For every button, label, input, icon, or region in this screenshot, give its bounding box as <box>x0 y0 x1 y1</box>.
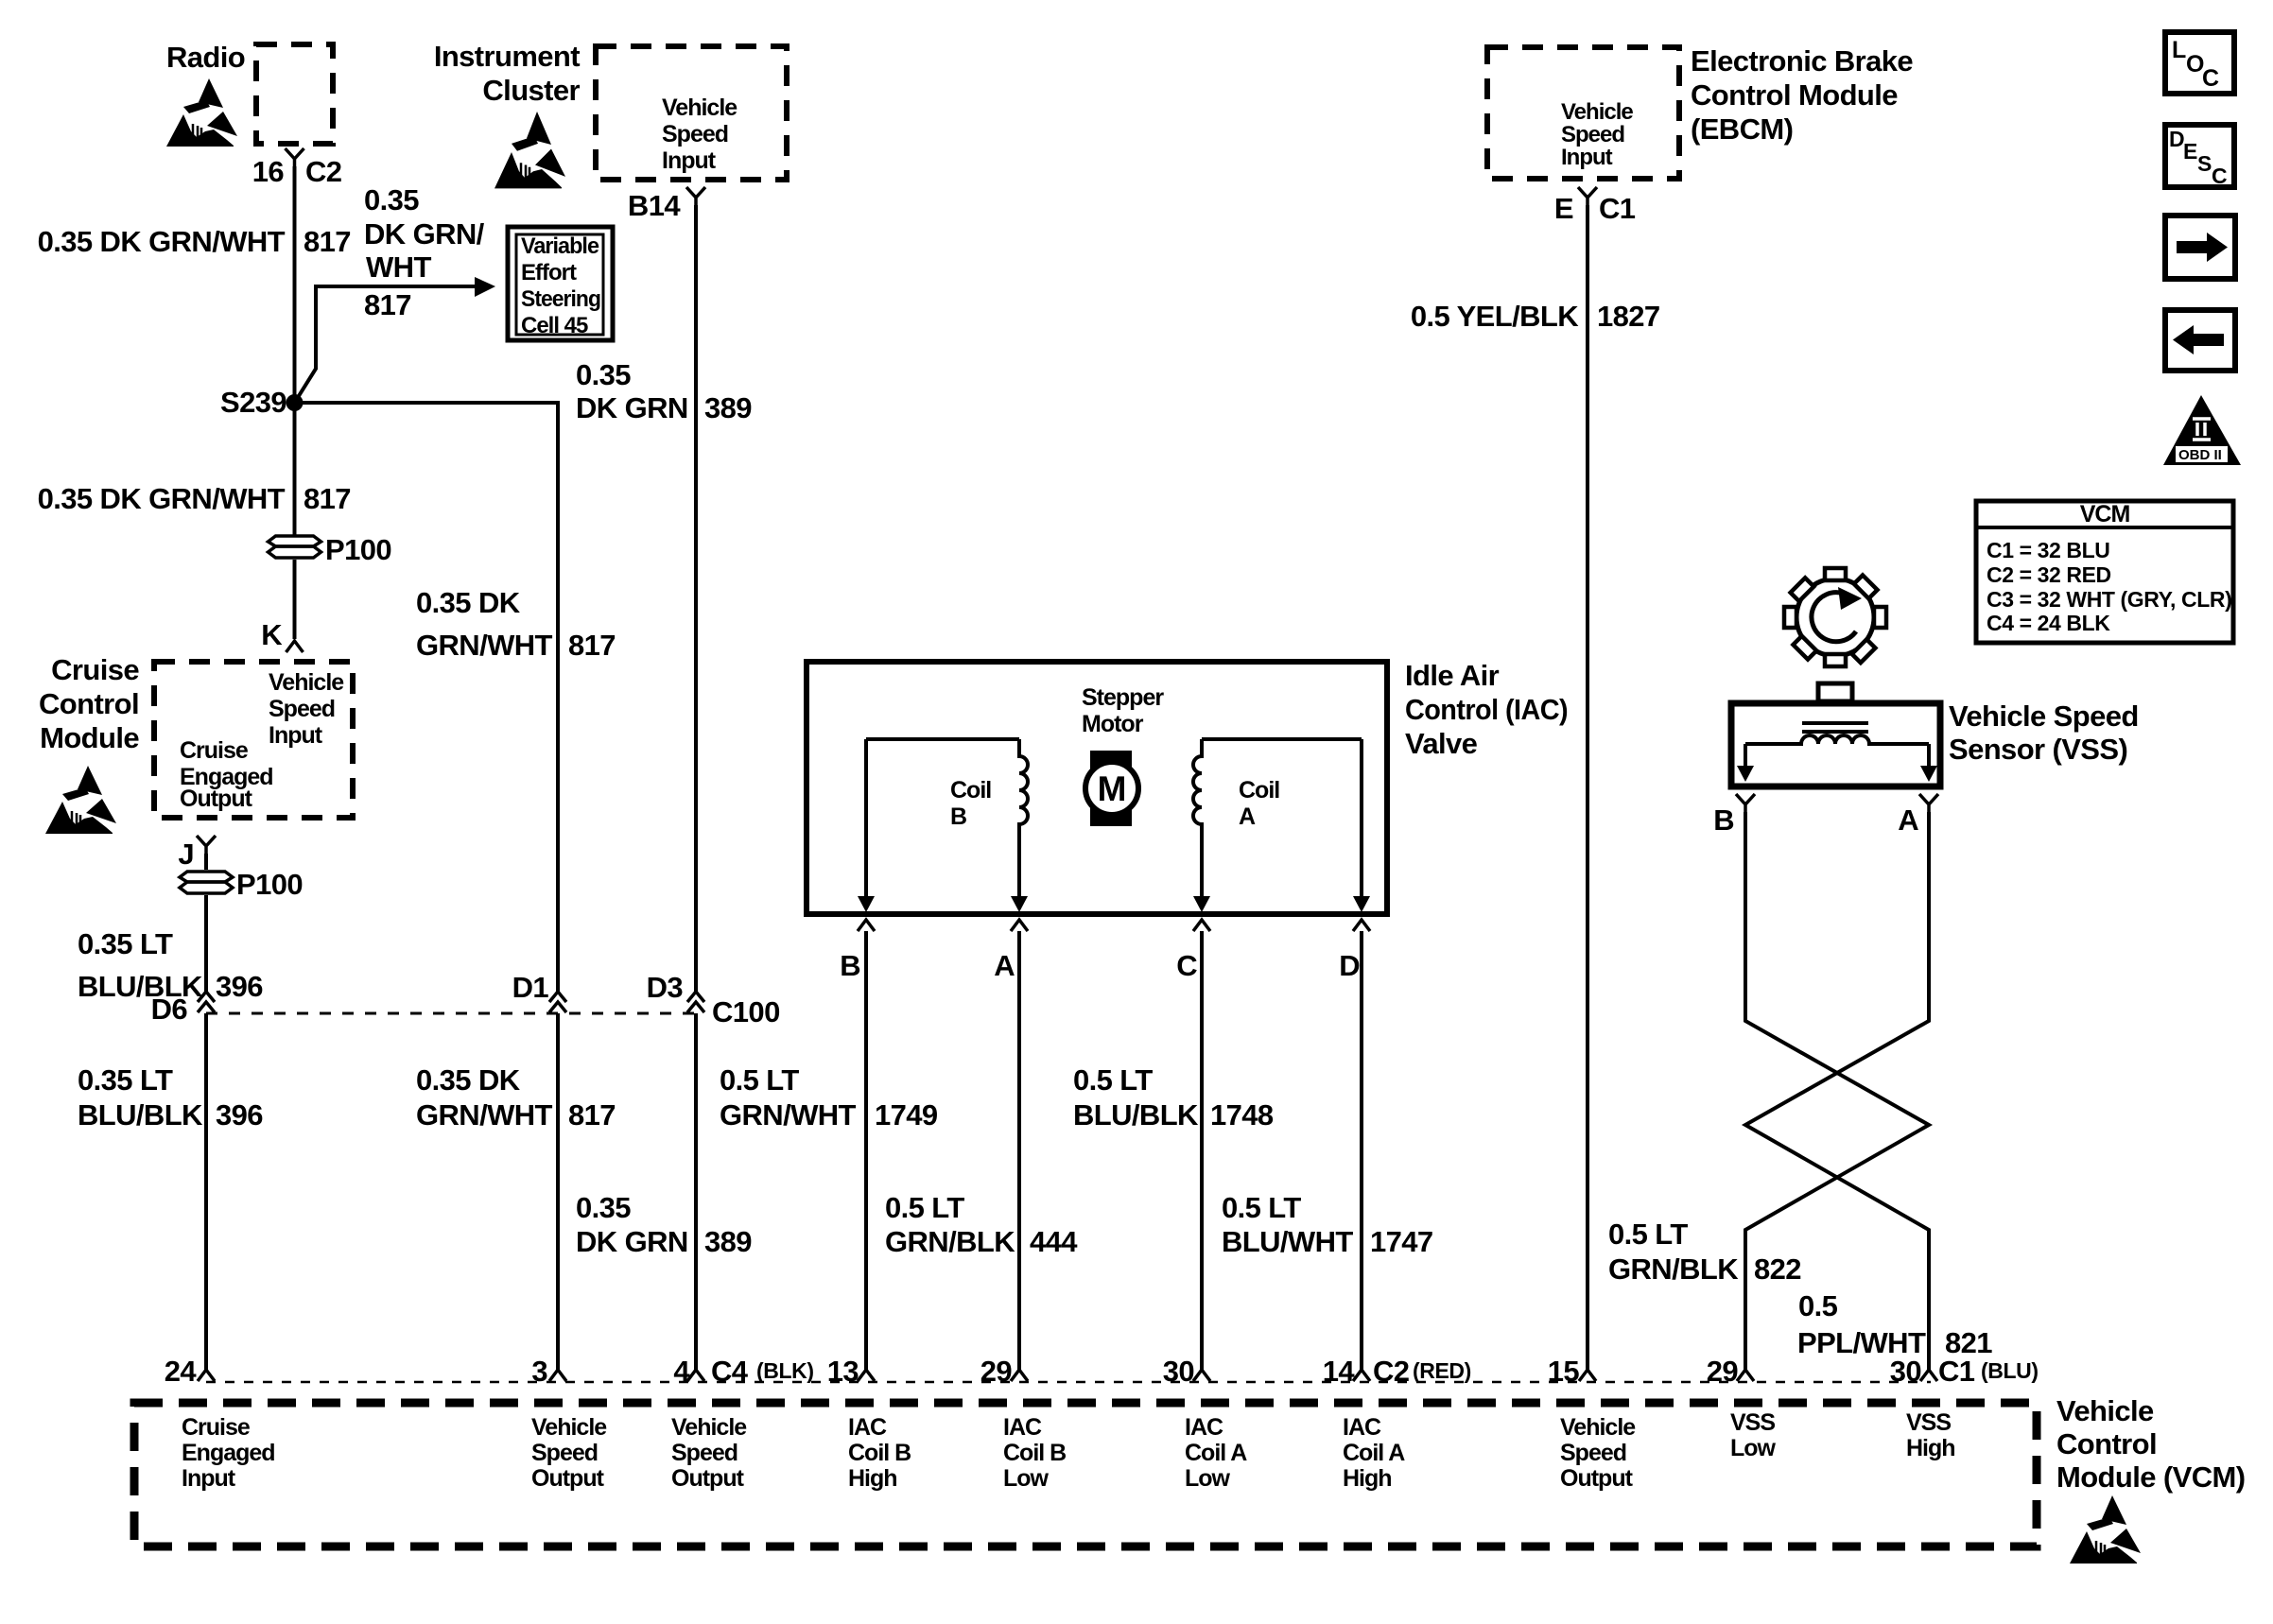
svg-text:Coil A: Coil A <box>1343 1440 1405 1466</box>
svg-text:0.35 DK: 0.35 DK <box>416 586 521 619</box>
svg-text:Radio: Radio <box>166 41 245 74</box>
svg-text:B: B <box>1713 803 1734 837</box>
svg-text:817: 817 <box>364 288 411 321</box>
svg-text:Stepper: Stepper <box>1082 684 1164 711</box>
svg-text:Low: Low <box>1730 1435 1777 1461</box>
svg-text:Cruise: Cruise <box>51 653 139 686</box>
svg-text:Low: Low <box>1185 1465 1231 1492</box>
svg-text:Module (VCM): Module (VCM) <box>2056 1460 2245 1494</box>
svg-text:0.5 LT: 0.5 LT <box>1222 1191 1301 1224</box>
svg-text:0.35: 0.35 <box>576 358 631 391</box>
svg-text:Vehicle: Vehicle <box>269 669 344 696</box>
svg-text:Module: Module <box>40 721 139 754</box>
svg-text:Control Module: Control Module <box>1691 78 1898 112</box>
svg-text:Valve: Valve <box>1405 727 1478 760</box>
svg-text:Vehicle Speed: Vehicle Speed <box>1949 700 2139 733</box>
svg-text:29: 29 <box>980 1355 1013 1388</box>
svg-text:15: 15 <box>1548 1355 1580 1388</box>
svg-text:High: High <box>848 1465 897 1492</box>
svg-text:GRN/WHT: GRN/WHT <box>416 1098 553 1132</box>
svg-text:817: 817 <box>568 1098 616 1132</box>
svg-text:Variable: Variable <box>521 233 599 259</box>
svg-text:Speed: Speed <box>671 1440 737 1466</box>
svg-text:Coil B: Coil B <box>848 1440 911 1466</box>
svg-text:30: 30 <box>1163 1355 1194 1388</box>
svg-text:3: 3 <box>531 1355 547 1388</box>
svg-text:13: 13 <box>827 1355 859 1388</box>
svg-text:D6: D6 <box>151 993 188 1026</box>
svg-text:P100: P100 <box>236 868 303 901</box>
svg-text:Cruise: Cruise <box>180 737 249 764</box>
svg-text:Control: Control <box>39 687 139 720</box>
svg-text:0.35 DK GRN/WHT: 0.35 DK GRN/WHT <box>38 482 286 515</box>
svg-text:(RED): (RED) <box>1413 1358 1471 1383</box>
svg-text:822: 822 <box>1754 1253 1801 1286</box>
svg-text:Control (IAC): Control (IAC) <box>1405 693 1568 726</box>
svg-text:Vehicle: Vehicle <box>1561 99 1633 125</box>
svg-text:C1: C1 <box>1599 192 1636 225</box>
svg-text:S239: S239 <box>220 386 286 419</box>
svg-text:C4: C4 <box>711 1355 749 1388</box>
svg-text:0.5: 0.5 <box>1798 1289 1838 1322</box>
svg-text:0.5 LT: 0.5 LT <box>885 1191 964 1224</box>
svg-text:Vehicle: Vehicle <box>2056 1394 2154 1427</box>
svg-text:1827: 1827 <box>1597 300 1660 333</box>
svg-text:Cruise: Cruise <box>182 1414 251 1441</box>
svg-text:Output: Output <box>1560 1465 1634 1492</box>
svg-text:S: S <box>2197 151 2212 176</box>
svg-text:389: 389 <box>704 391 752 424</box>
svg-text:Steering: Steering <box>521 286 600 312</box>
svg-text:C100: C100 <box>712 995 780 1028</box>
svg-text:C3 = 32 WHT (GRY, CLR): C3 = 32 WHT (GRY, CLR) <box>1987 587 2231 612</box>
svg-text:D3: D3 <box>647 971 684 1004</box>
svg-text:IAC: IAC <box>1343 1414 1381 1441</box>
svg-text:WHT: WHT <box>366 251 431 284</box>
svg-text:IAC: IAC <box>848 1414 887 1441</box>
svg-text:IAC: IAC <box>1185 1414 1223 1441</box>
svg-text:VSS: VSS <box>1730 1409 1775 1436</box>
svg-text:(EBCM): (EBCM) <box>1691 112 1793 146</box>
svg-text:Input: Input <box>1561 145 1613 170</box>
svg-text:C2 = 32 RED: C2 = 32 RED <box>1987 562 2111 587</box>
svg-text:P100: P100 <box>325 533 391 566</box>
svg-text:VSS: VSS <box>1906 1409 1951 1436</box>
svg-text:M: M <box>1098 769 1127 808</box>
svg-text:GRN/BLK: GRN/BLK <box>1608 1253 1739 1286</box>
svg-text:C1: C1 <box>1938 1355 1975 1388</box>
svg-text:VCM: VCM <box>2080 501 2130 527</box>
svg-text:0.5 YEL/BLK: 0.5 YEL/BLK <box>1411 300 1579 333</box>
svg-text:C4 = 24 BLK: C4 = 24 BLK <box>1987 611 2110 635</box>
svg-text:High: High <box>1906 1435 1955 1461</box>
svg-text:Instrument: Instrument <box>434 40 580 73</box>
svg-text:Low: Low <box>1003 1465 1050 1492</box>
svg-text:0.35: 0.35 <box>576 1191 631 1224</box>
svg-text:High: High <box>1343 1465 1392 1492</box>
svg-text:IAC: IAC <box>1003 1414 1042 1441</box>
svg-text:16: 16 <box>252 155 285 188</box>
svg-text:0.5 LT: 0.5 LT <box>1073 1063 1153 1097</box>
svg-text:389: 389 <box>704 1225 752 1258</box>
svg-text:A: A <box>994 949 1015 982</box>
svg-text:817: 817 <box>304 482 351 515</box>
svg-text:Coil B: Coil B <box>1003 1440 1066 1466</box>
svg-text:24: 24 <box>165 1355 198 1388</box>
svg-text:Vehicle: Vehicle <box>671 1414 747 1441</box>
svg-text:DK GRN: DK GRN <box>576 1225 688 1258</box>
svg-text:Speed: Speed <box>662 121 728 147</box>
svg-text:E: E <box>1554 192 1573 225</box>
svg-text:4: 4 <box>673 1355 690 1388</box>
svg-text:C1 = 32 BLU: C1 = 32 BLU <box>1987 538 2109 562</box>
svg-text:C: C <box>1176 949 1197 982</box>
svg-text:0.35 DK: 0.35 DK <box>416 1063 521 1097</box>
svg-text:Cluster: Cluster <box>482 74 580 107</box>
svg-text:Speed: Speed <box>269 696 335 722</box>
svg-text:K: K <box>261 618 283 651</box>
svg-text:444: 444 <box>1030 1225 1078 1258</box>
svg-text:0.35 LT: 0.35 LT <box>78 927 173 960</box>
svg-text:BLU/BLK: BLU/BLK <box>78 1098 203 1132</box>
svg-text:J: J <box>178 838 194 871</box>
svg-text:D1: D1 <box>512 971 549 1004</box>
svg-text:D: D <box>2169 127 2184 151</box>
svg-text:396: 396 <box>216 1098 263 1132</box>
svg-text:30: 30 <box>1890 1355 1921 1388</box>
svg-text:0.35 LT: 0.35 LT <box>78 1063 173 1097</box>
svg-text:GRN/WHT: GRN/WHT <box>416 629 553 662</box>
svg-text:Cell 45: Cell 45 <box>521 313 588 338</box>
svg-text:Vehicle: Vehicle <box>1560 1414 1636 1441</box>
svg-text:Motor: Motor <box>1082 711 1144 737</box>
svg-text:DK GRN: DK GRN <box>576 391 688 424</box>
svg-text:C: C <box>2212 164 2227 188</box>
svg-text:Effort: Effort <box>521 260 577 285</box>
svg-text:Engaged: Engaged <box>182 1440 275 1466</box>
svg-text:1749: 1749 <box>875 1098 938 1132</box>
svg-text:Output: Output <box>531 1465 605 1492</box>
svg-text:B14: B14 <box>628 189 681 222</box>
svg-text:14: 14 <box>1323 1355 1356 1388</box>
svg-text:C2: C2 <box>1373 1355 1409 1388</box>
svg-text:Vehicle: Vehicle <box>662 95 737 121</box>
svg-text:Idle Air: Idle Air <box>1405 659 1500 692</box>
svg-text:BLU/WHT: BLU/WHT <box>1222 1225 1353 1258</box>
svg-text:C2: C2 <box>305 155 341 188</box>
svg-text:Electronic Brake: Electronic Brake <box>1691 44 1913 78</box>
svg-text:DK GRN/: DK GRN/ <box>364 217 485 251</box>
svg-text:Speed: Speed <box>1560 1440 1626 1466</box>
svg-text:1747: 1747 <box>1370 1225 1433 1258</box>
svg-text:817: 817 <box>304 225 351 258</box>
svg-text:BLU/BLK: BLU/BLK <box>1073 1098 1199 1132</box>
svg-text:E: E <box>2183 139 2197 164</box>
svg-text:(BLK): (BLK) <box>756 1358 814 1383</box>
svg-text:(BLU): (BLU) <box>1981 1358 2039 1383</box>
svg-text:396: 396 <box>216 970 263 1003</box>
svg-text:1748: 1748 <box>1210 1098 1274 1132</box>
svg-text:L: L <box>2172 37 2186 63</box>
svg-text:GRN/WHT: GRN/WHT <box>720 1098 857 1132</box>
svg-text:Output: Output <box>180 786 253 812</box>
svg-text:A: A <box>1239 803 1256 830</box>
svg-text:Output: Output <box>671 1465 745 1492</box>
svg-text:C: C <box>2202 65 2219 92</box>
svg-text:0.35: 0.35 <box>364 183 419 216</box>
svg-text:817: 817 <box>568 629 616 662</box>
svg-text:0.5 LT: 0.5 LT <box>1608 1218 1688 1251</box>
svg-text:0.35 DK GRN/WHT: 0.35 DK GRN/WHT <box>38 225 286 258</box>
svg-text:GRN/BLK: GRN/BLK <box>885 1225 1015 1258</box>
svg-text:Speed: Speed <box>531 1440 598 1466</box>
svg-text:Input: Input <box>662 147 717 174</box>
svg-text:Coil: Coil <box>950 777 991 803</box>
svg-text:Input: Input <box>269 722 323 749</box>
svg-text:Speed: Speed <box>1561 122 1624 147</box>
svg-text:29: 29 <box>1707 1355 1739 1388</box>
svg-text:Coil A: Coil A <box>1185 1440 1247 1466</box>
svg-text:OBD II: OBD II <box>2178 447 2222 463</box>
svg-text:D: D <box>1339 949 1360 982</box>
svg-text:A: A <box>1898 803 1918 837</box>
svg-text:Control: Control <box>2056 1427 2157 1460</box>
svg-text:Vehicle: Vehicle <box>531 1414 607 1441</box>
svg-text:B: B <box>840 949 860 982</box>
svg-text:Sensor (VSS): Sensor (VSS) <box>1949 733 2127 766</box>
svg-text:Input: Input <box>182 1465 236 1492</box>
svg-text:0.5 LT: 0.5 LT <box>720 1063 799 1097</box>
svg-text:B: B <box>950 803 966 830</box>
svg-text:Coil: Coil <box>1239 777 1279 803</box>
